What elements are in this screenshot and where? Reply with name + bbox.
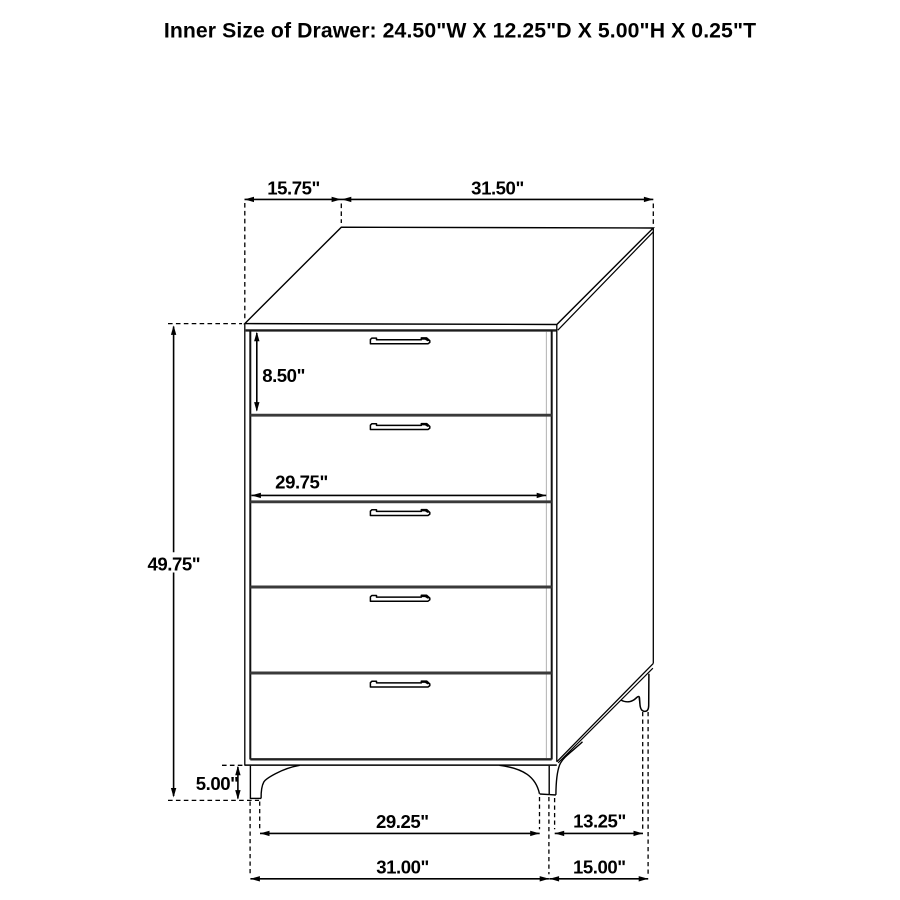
svg-text:31.00": 31.00" xyxy=(376,856,429,877)
svg-text:49.75": 49.75" xyxy=(147,554,200,575)
svg-text:5.00": 5.00" xyxy=(196,773,239,794)
svg-text:Inner Size of Drawer: 24.50"W: Inner Size of Drawer: 24.50"W X 12.25"D … xyxy=(164,20,756,43)
svg-text:13.25": 13.25" xyxy=(573,811,626,832)
svg-text:15.00": 15.00" xyxy=(573,856,626,877)
svg-text:29.75": 29.75" xyxy=(275,472,328,493)
svg-text:29.25": 29.25" xyxy=(376,811,429,832)
svg-text:8.50": 8.50" xyxy=(262,365,305,386)
svg-text:15.75": 15.75" xyxy=(267,177,320,198)
svg-text:31.50": 31.50" xyxy=(471,177,524,198)
